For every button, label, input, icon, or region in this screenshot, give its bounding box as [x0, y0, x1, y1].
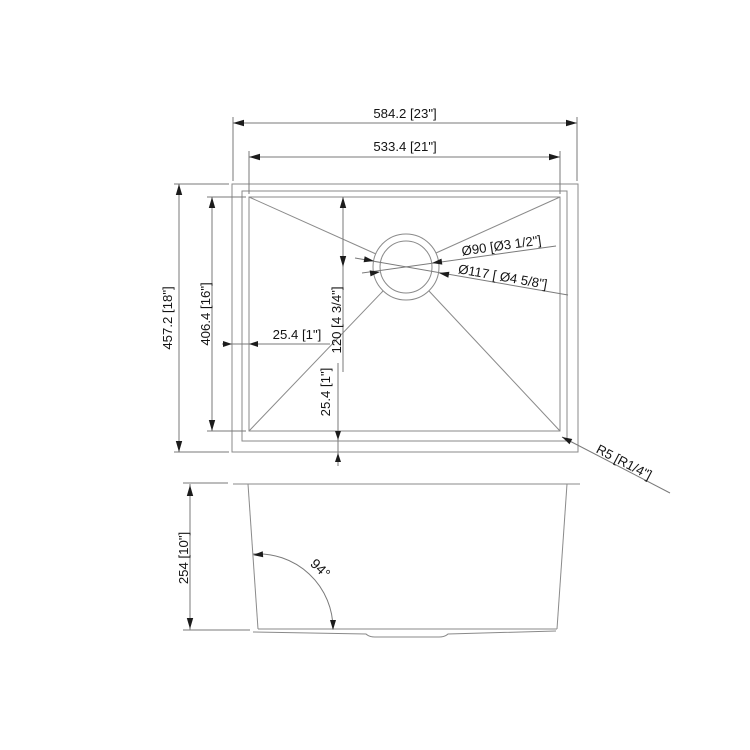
top-view-geometry [232, 184, 578, 452]
rim-inner-edge [242, 191, 567, 441]
top-view-arrowheads [176, 120, 577, 462]
right-wall-profile [557, 484, 567, 629]
dim-drain-outer-diameter: Ø117 [ Ø4 5/8"] [457, 261, 548, 291]
top-view-dimension-lines [174, 117, 670, 493]
dim-overall-width: 584.2 [23"] [373, 106, 436, 121]
bowl-opening-edge [249, 197, 560, 431]
dim-side-bowl-depth: 254 [10"] [176, 532, 191, 584]
dim-bowl-width: 533.4 [21"] [373, 139, 436, 154]
side-view-geometry [233, 484, 580, 637]
dim-rim-reveal-bottom: 25.4 [1"] [318, 368, 333, 417]
bowl-crease-top-left [249, 197, 376, 254]
rim-outer-edge [232, 184, 578, 452]
top-view: 584.2 [23"] 533.4 [21"] 457.2 [18"] 406.… [160, 106, 670, 493]
bottom-drain-recess-profile [253, 631, 556, 637]
left-wall-profile [248, 484, 258, 629]
side-view-arrowheads [187, 485, 336, 630]
dim-overall-depth: 457.2 [18"] [160, 286, 175, 349]
side-view-dimension-lines [183, 483, 333, 630]
dim-wall-angle: 94° [307, 555, 333, 581]
side-view: 254 [10"] 94° [176, 483, 580, 637]
dim-drain-offset: 120 [4 3/4"] [329, 286, 344, 353]
dim-corner-radius: R5 [R1/4"] [594, 441, 654, 482]
dim-rim-reveal-left: 25.4 [1"] [273, 327, 322, 342]
dim-bowl-depth: 406.4 [16"] [198, 282, 213, 345]
bowl-crease-bottom-right [429, 291, 560, 431]
technical-drawing: 584.2 [23"] 533.4 [21"] 457.2 [18"] 406.… [0, 0, 750, 750]
bowl-crease-bottom-left [249, 291, 383, 431]
